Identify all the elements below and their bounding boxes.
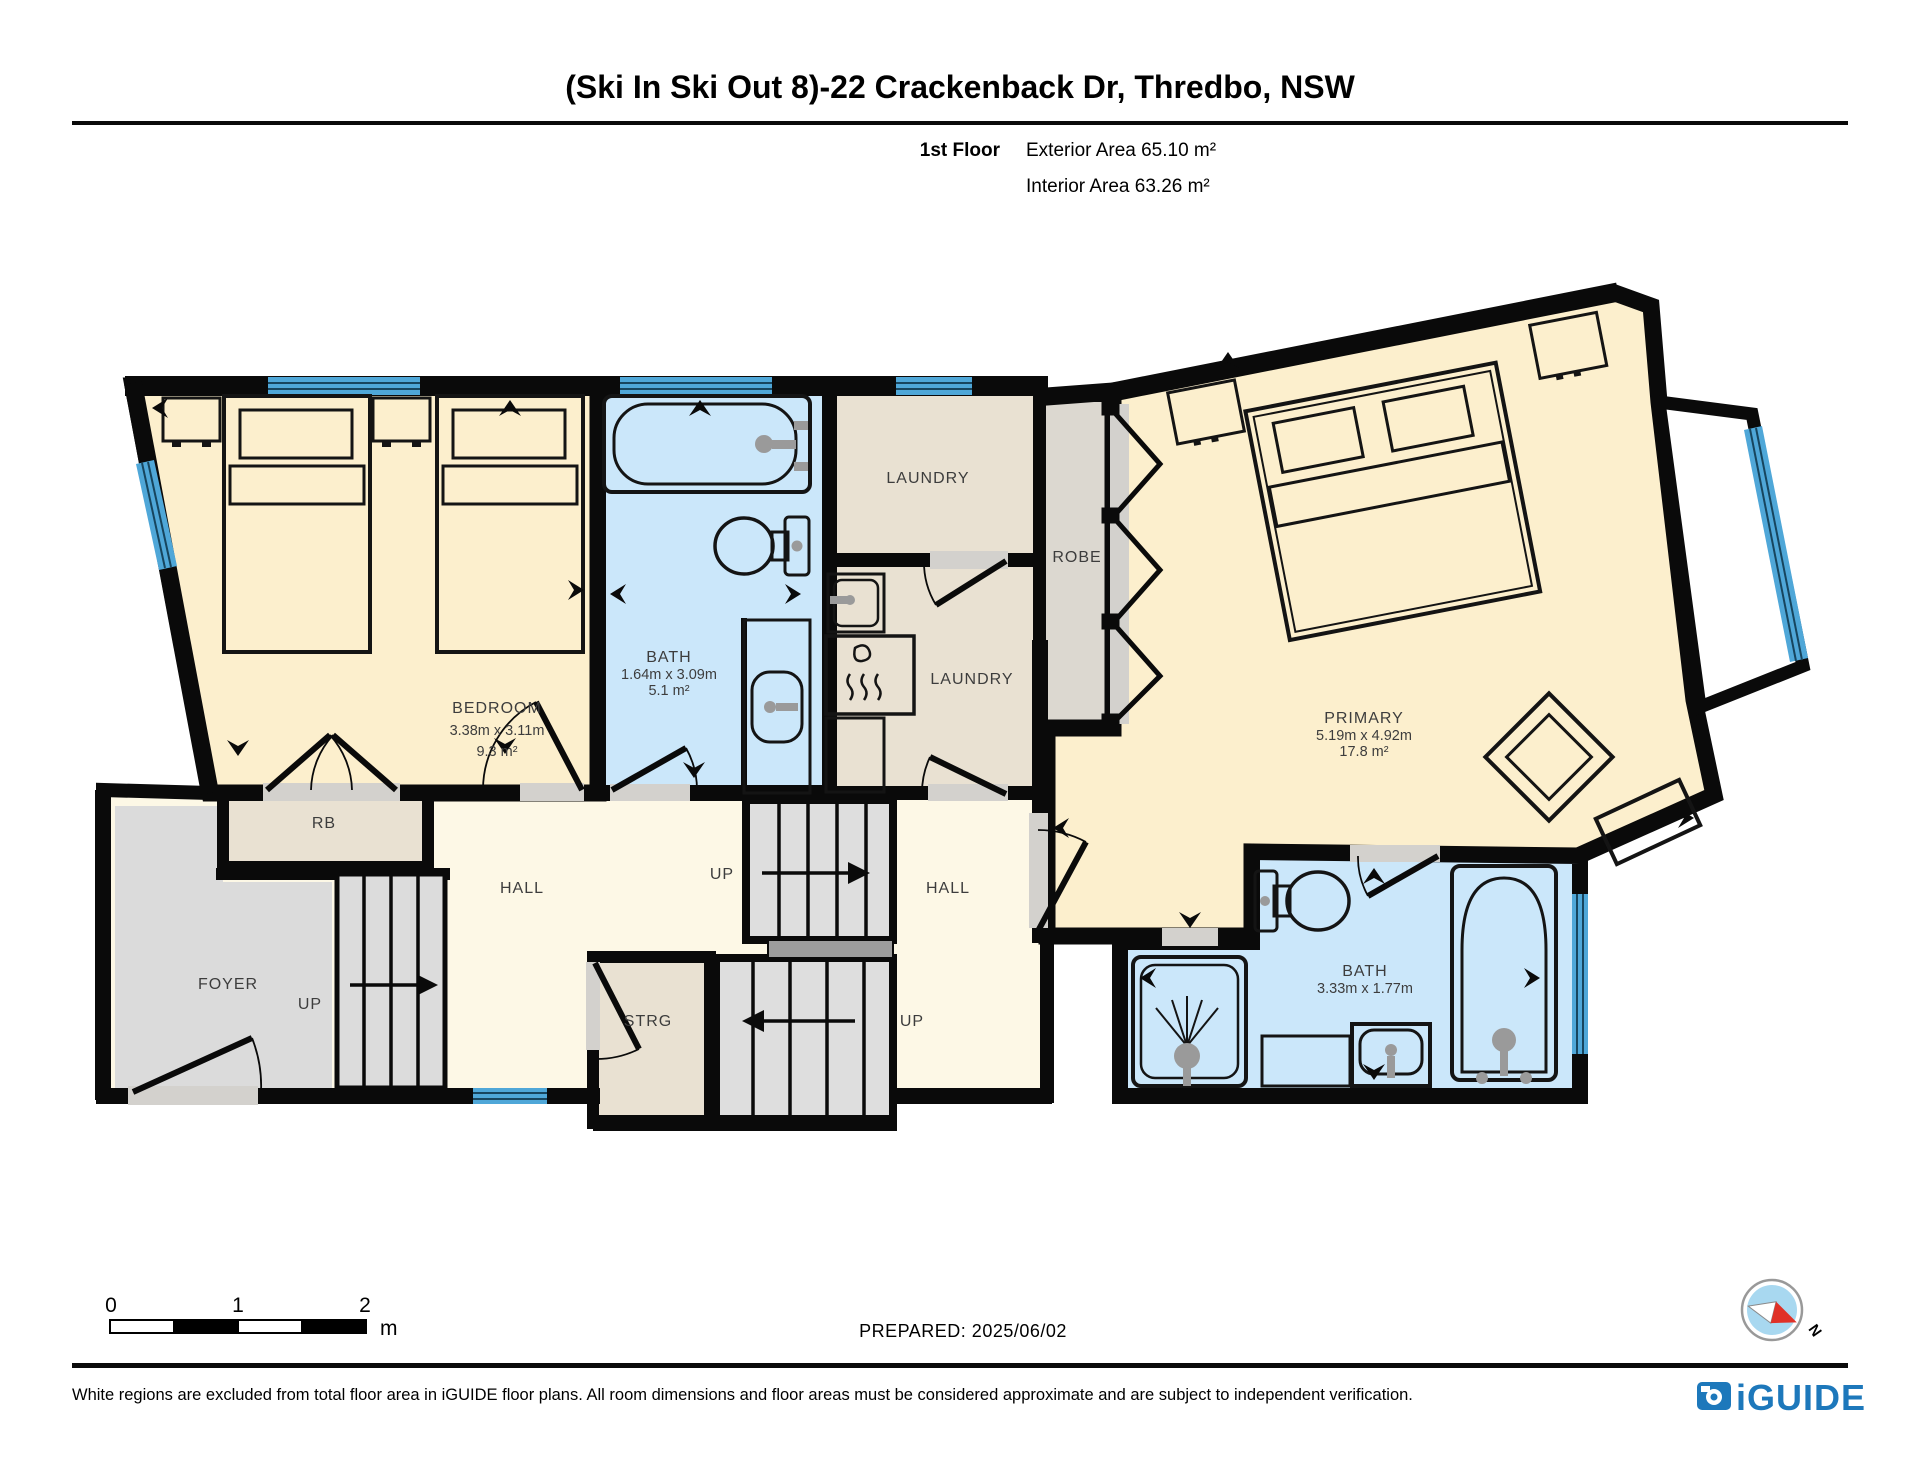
iguide-logo: iGUIDE: [1697, 1377, 1866, 1418]
page-title: (Ski In Ski Out 8)-22 Crackenback Dr, Th…: [565, 69, 1355, 105]
label-strg: STRG: [624, 1013, 672, 1030]
footer-divider: [72, 1363, 1848, 1368]
label-robe: ROBE: [1052, 549, 1101, 566]
window-bedroom-top: [268, 377, 420, 395]
label-primary-dims: 5.19m x 4.92m: [1316, 728, 1412, 744]
scale-bar: 0 1 2 m: [105, 1294, 397, 1340]
window-bath1-top: [620, 377, 772, 395]
threshold-robe-opening: [1110, 404, 1129, 724]
interior-area-label: Interior Area 63.26 m²: [1026, 176, 1210, 197]
label-up-right: UP: [900, 1013, 924, 1030]
threshold-rb-doors: [263, 783, 400, 801]
floor-label: 1st Floor: [920, 140, 1001, 161]
scale-tick-2: 2: [359, 1294, 371, 1317]
exterior-area-label: Exterior Area 65.10 m²: [1026, 140, 1216, 161]
slant-wall-left: [1040, 391, 1120, 397]
threshold-shower-opening: [1162, 928, 1218, 946]
stairwell-lower: [716, 958, 893, 1123]
label-rb: RB: [312, 815, 336, 832]
label-laundry2: LAUNDRY: [930, 671, 1013, 688]
compass: N: [1742, 1280, 1825, 1340]
label-up-mid: UP: [710, 866, 734, 883]
scale-tick-1: 1: [232, 1294, 244, 1317]
label-primary: PRIMARY: [1324, 710, 1404, 727]
label-bath1: BATH: [646, 649, 691, 666]
label-hall-left: HALL: [500, 880, 544, 897]
title-divider: [72, 121, 1848, 125]
prepared-date: PREPARED: 2025/06/02: [859, 1321, 1067, 1341]
label-bedroom-dims: 3.38m x 3.11m: [450, 723, 545, 739]
window-hall-bottom: [473, 1088, 547, 1104]
window-bath2-right: [1572, 894, 1588, 1054]
label-hall-right: HALL: [926, 880, 970, 897]
threshold-bedroom-door: [520, 783, 584, 801]
label-foyer: FOYER: [198, 976, 258, 993]
room-strg: [593, 957, 710, 1123]
stair-landing: [768, 940, 893, 958]
footer-disclaimer: White regions are excluded from total fl…: [72, 1386, 1413, 1404]
window-laundry-top: [896, 377, 972, 395]
label-bath2: BATH: [1342, 963, 1387, 980]
label-primary-area: 17.8 m²: [1339, 744, 1388, 760]
compass-north-label: N: [1805, 1321, 1825, 1340]
scale-unit: m: [380, 1317, 398, 1340]
scale-tick-0: 0: [105, 1294, 117, 1317]
threshold-entry-door: [128, 1086, 258, 1105]
label-bedroom: BEDROOM: [452, 700, 542, 717]
floorplan-page: (Ski In Ski Out 8)-22 Crackenback Dr, Th…: [0, 0, 1920, 1484]
iguide-camera-icon: [1697, 1382, 1731, 1410]
label-bath1-dims: 1.64m x 3.09m: [621, 667, 717, 683]
label-bedroom-area: 9.3 m²: [476, 744, 517, 760]
label-bath1-area: 5.1 m²: [648, 683, 689, 699]
label-laundry1: LAUNDRY: [886, 470, 969, 487]
floorplan-svg: (Ski In Ski Out 8)-22 Crackenback Dr, Th…: [0, 0, 1920, 1484]
iguide-logo-text: iGUIDE: [1736, 1377, 1866, 1418]
label-up-foyer: UP: [298, 996, 322, 1013]
label-bath2-dims: 3.33m x 1.77m: [1317, 981, 1413, 997]
stairwell-upper: [746, 800, 893, 940]
